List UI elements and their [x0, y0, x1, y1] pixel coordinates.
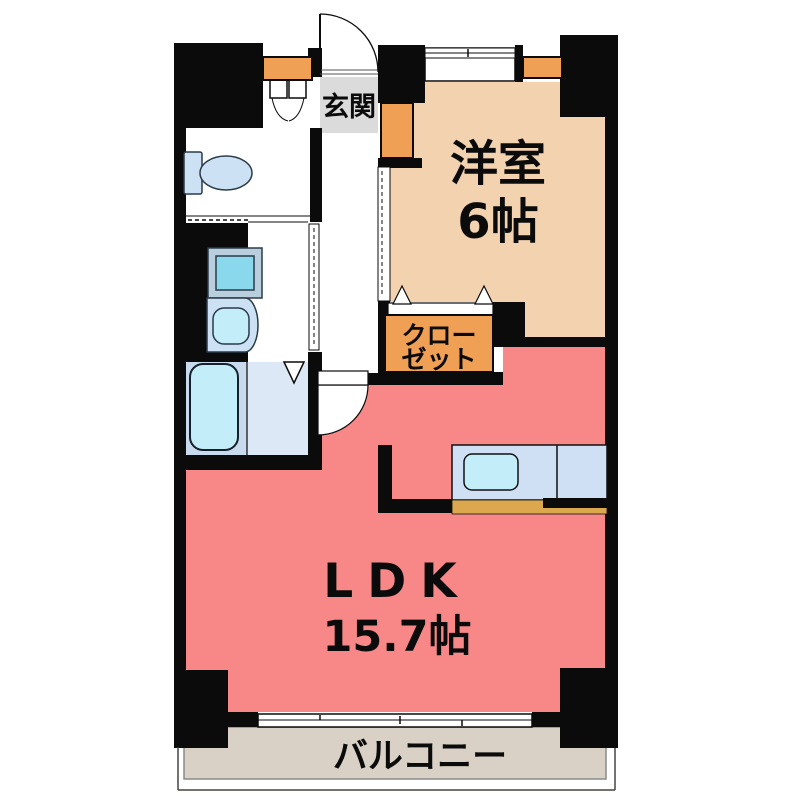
yoshitsu-window: [425, 48, 515, 81]
washing-machine: [208, 248, 262, 298]
label-ldk: LDK: [323, 554, 470, 609]
toilet-bowl: [200, 156, 252, 190]
yoshitsu-cabinet: [523, 57, 562, 78]
storage-shelf: [263, 57, 312, 80]
sliding-door-washroom: [309, 224, 319, 350]
washbasin: [207, 298, 258, 352]
label-balcony: バルコニー: [333, 737, 507, 777]
label-genkan: 玄関: [322, 91, 376, 123]
entrance-swing-door: [320, 14, 378, 72]
floorplan-canvas: 玄関 洋室 6帖 クロー ゼット LDK 15.7帖 バルコニー: [0, 0, 800, 800]
kitchen-counter: [452, 445, 607, 514]
bathtub: [190, 364, 238, 450]
floorplan-svg: 玄関 洋室 6帖 クロー ゼット LDK 15.7帖 バルコニー: [0, 0, 800, 800]
genkan-sill: [320, 70, 378, 74]
label-ldk-size: 15.7帖: [322, 612, 471, 662]
sliding-door-yoshitsu: [378, 167, 390, 301]
label-yoshitsu: 洋室: [450, 136, 546, 192]
balcony-sliding-window: [258, 714, 532, 727]
label-yoshitsu-size: 6帖: [457, 194, 538, 250]
hallway-floor: [319, 133, 378, 385]
shoe-cabinet: [381, 103, 413, 158]
toilet-washroom-divider: [186, 215, 310, 223]
kitchen-sink: [464, 454, 518, 490]
label-closet-line2: ゼット: [401, 345, 476, 374]
